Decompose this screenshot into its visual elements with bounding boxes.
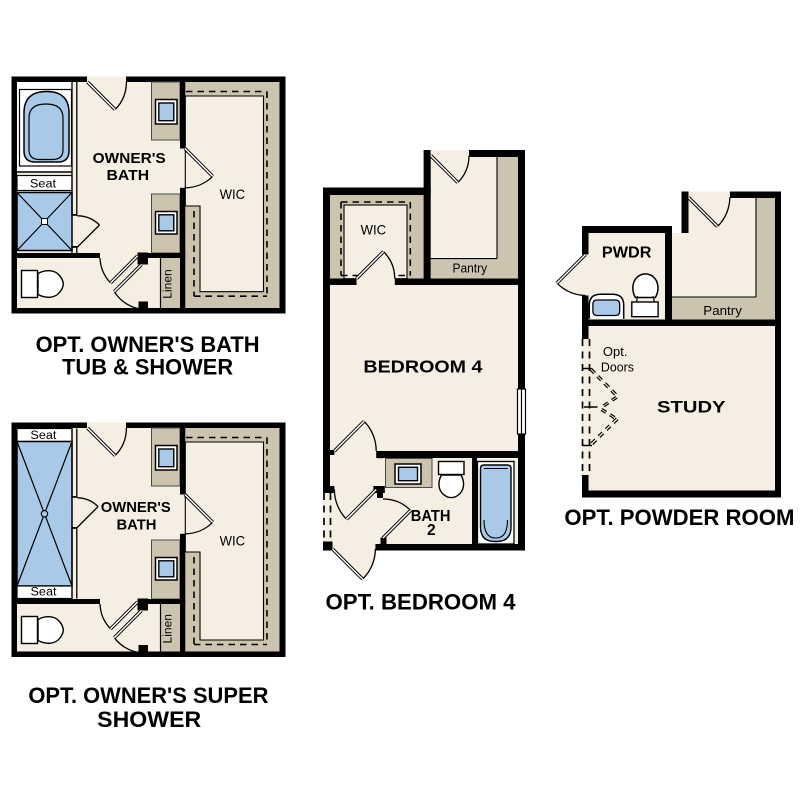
svg-text:SHOWER: SHOWER <box>97 707 201 732</box>
svg-text:OPT. BEDROOM 4: OPT. BEDROOM 4 <box>326 590 517 615</box>
svg-text:WIC: WIC <box>361 222 387 238</box>
svg-text:Seat: Seat <box>30 430 57 442</box>
svg-text:Opt.: Opt. <box>603 344 628 359</box>
svg-text:STUDY: STUDY <box>657 397 726 416</box>
svg-text:Doors: Doors <box>601 359 634 374</box>
svg-text:OPT. OWNER'S BATH: OPT. OWNER'S BATH <box>36 332 260 357</box>
svg-text:Linen: Linen <box>162 269 174 299</box>
svg-text:OWNER'S: OWNER'S <box>101 500 171 516</box>
svg-text:OWNER'S: OWNER'S <box>93 151 166 167</box>
svg-text:WIC: WIC <box>220 186 246 202</box>
svg-text:OPT. POWDER ROOM: OPT. POWDER ROOM <box>564 505 794 530</box>
svg-text:BATH: BATH <box>107 168 150 184</box>
svg-text:Linen: Linen <box>162 614 174 644</box>
svg-text:WIC: WIC <box>220 533 246 549</box>
svg-text:BEDROOM 4: BEDROOM 4 <box>363 356 482 376</box>
svg-text:TUB & SHOWER: TUB & SHOWER <box>62 355 233 380</box>
svg-text:BATH: BATH <box>117 518 157 534</box>
svg-text:2: 2 <box>427 522 436 539</box>
svg-text:Seat: Seat <box>31 587 58 599</box>
svg-text:OPT. OWNER'S SUPER: OPT. OWNER'S SUPER <box>28 683 268 708</box>
svg-text:PWDR: PWDR <box>602 244 652 261</box>
svg-text:Pantry: Pantry <box>703 304 742 318</box>
svg-text:Seat: Seat <box>30 179 57 191</box>
svg-text:Pantry: Pantry <box>453 261 488 275</box>
